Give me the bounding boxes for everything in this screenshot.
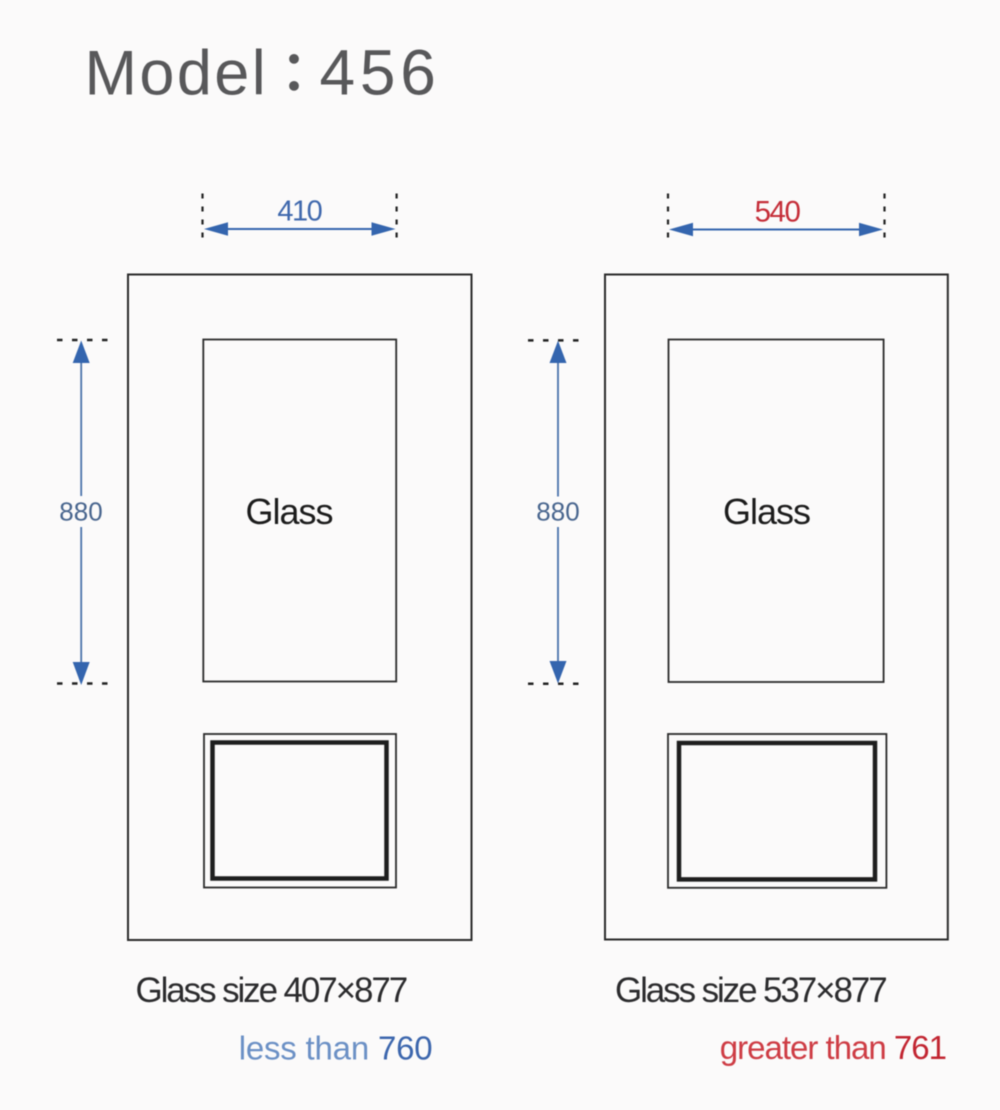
svg-text:880: 880 [536, 497, 579, 527]
svg-text:410: 410 [277, 196, 321, 228]
svg-text:Model: Model [85, 39, 269, 109]
svg-text:Glass size 407×877: Glass size 407×877 [136, 971, 407, 1010]
svg-text:Glass: Glass [245, 491, 332, 532]
svg-text:540: 540 [755, 196, 801, 229]
svg-text:less than 760: less than 760 [239, 1030, 433, 1067]
svg-text:456: 456 [320, 37, 441, 109]
svg-text:Glass size 537×877: Glass size 537×877 [615, 971, 886, 1010]
svg-text:greater than 761: greater than 761 [720, 1029, 946, 1066]
svg-text:Glass: Glass [723, 491, 810, 532]
svg-text:880: 880 [59, 497, 102, 527]
